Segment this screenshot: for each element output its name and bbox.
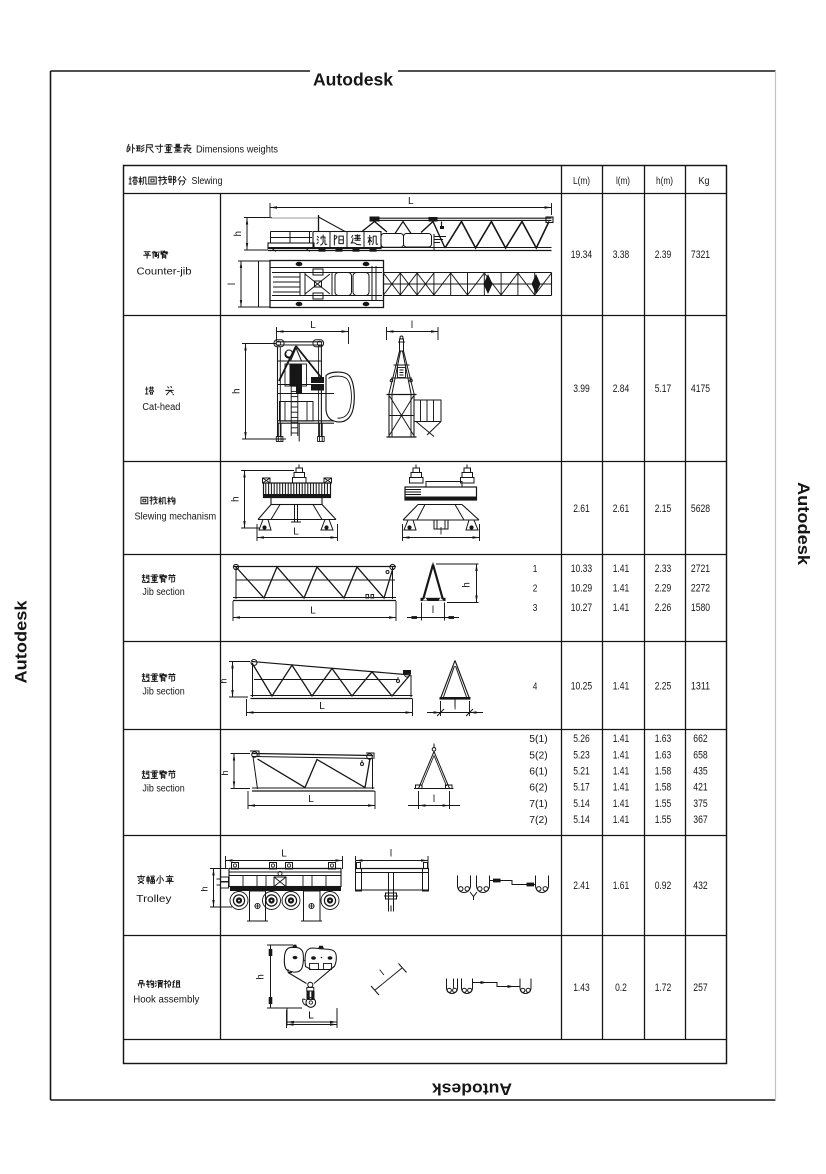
svg-text:Slewing: Slewing [192, 175, 223, 187]
svg-text:2272: 2272 [691, 583, 710, 595]
svg-text:l: l [411, 320, 413, 331]
svg-text:1580: 1580 [691, 602, 710, 614]
svg-text:l: l [454, 702, 456, 713]
svg-text:L: L [293, 527, 299, 538]
svg-text:2.29: 2.29 [655, 583, 672, 595]
svg-text:5628: 5628 [691, 503, 710, 515]
svg-text:4175: 4175 [691, 383, 710, 395]
svg-text:Counter-jib: Counter-jib [137, 267, 192, 278]
svg-text:7321: 7321 [691, 249, 710, 261]
svg-text:2.39: 2.39 [655, 249, 672, 261]
svg-text:0.2: 0.2 [615, 982, 627, 994]
svg-text:5.17: 5.17 [655, 383, 672, 395]
svg-text:Cat-head: Cat-head [142, 402, 180, 413]
svg-text:1.61: 1.61 [613, 880, 630, 892]
svg-text:2.61: 2.61 [573, 503, 590, 515]
svg-text:658: 658 [693, 749, 707, 761]
svg-text:L(m): L(m) [573, 175, 590, 187]
svg-text:1.55: 1.55 [655, 798, 672, 810]
svg-text:421: 421 [693, 782, 707, 794]
svg-text:L: L [308, 1011, 314, 1022]
svg-text:L: L [319, 701, 325, 712]
svg-text:10.25: 10.25 [571, 681, 592, 693]
svg-text:1.55: 1.55 [655, 814, 672, 826]
svg-text:h: h [462, 582, 473, 588]
svg-text:Hook assembly: Hook assembly [133, 995, 199, 1006]
svg-text:1.41: 1.41 [613, 749, 630, 761]
svg-text:l: l [433, 794, 435, 805]
svg-text:Jib section: Jib section [142, 784, 184, 795]
svg-text:1.41: 1.41 [613, 563, 630, 575]
svg-text:10.33: 10.33 [571, 563, 592, 575]
svg-text:375: 375 [693, 798, 707, 810]
svg-text:435: 435 [693, 766, 707, 778]
svg-text:19.34: 19.34 [571, 249, 592, 261]
svg-text:5(1): 5(1) [529, 734, 547, 745]
svg-text:l: l [440, 527, 442, 538]
svg-text:l: l [227, 283, 238, 285]
svg-text:5.14: 5.14 [573, 798, 590, 810]
svg-text:h: h [232, 388, 243, 394]
svg-text:7(1): 7(1) [529, 799, 547, 810]
svg-text:2.61: 2.61 [613, 503, 630, 515]
svg-text:h: h [219, 678, 230, 683]
svg-text:Autodesk: Autodesk [12, 600, 31, 684]
svg-text:1.41: 1.41 [613, 766, 630, 778]
svg-text:257: 257 [693, 982, 707, 994]
svg-text:l: l [432, 605, 434, 616]
svg-text:3.99: 3.99 [573, 383, 590, 395]
svg-text:h: h [231, 496, 242, 502]
svg-text:L: L [310, 320, 316, 331]
svg-text:1.58: 1.58 [655, 766, 672, 778]
svg-text:2.26: 2.26 [655, 602, 672, 614]
svg-text:Autodesk: Autodesk [794, 482, 813, 566]
svg-text:Autodesk: Autodesk [431, 1080, 512, 1099]
svg-text:1.41: 1.41 [613, 602, 630, 614]
svg-text:432: 432 [693, 880, 707, 892]
svg-text:h(m): h(m) [656, 175, 673, 187]
svg-text:Dimensions weights: Dimensions weights [196, 145, 278, 156]
svg-text:l(m): l(m) [616, 175, 630, 187]
svg-text:1.58: 1.58 [655, 782, 672, 794]
svg-text:2.84: 2.84 [613, 383, 630, 395]
svg-text:L: L [408, 196, 414, 207]
svg-text:6(2): 6(2) [529, 783, 547, 794]
svg-text:2.25: 2.25 [655, 681, 672, 693]
svg-text:Kg: Kg [699, 175, 710, 187]
svg-text:l: l [390, 849, 392, 860]
svg-text:5(2): 5(2) [529, 750, 547, 761]
svg-text:2: 2 [533, 584, 538, 595]
svg-text:662: 662 [693, 733, 707, 745]
svg-text:1.41: 1.41 [613, 583, 630, 595]
svg-text:1.41: 1.41 [613, 814, 630, 826]
svg-text:5.17: 5.17 [573, 782, 590, 794]
svg-text:Jib section: Jib section [142, 587, 184, 598]
svg-text:3: 3 [533, 603, 538, 614]
svg-text:2.15: 2.15 [655, 503, 672, 515]
svg-text:Jib section: Jib section [142, 687, 184, 698]
svg-text:Slewing mechanism: Slewing mechanism [135, 512, 217, 523]
svg-text:7(2): 7(2) [529, 815, 547, 826]
svg-text:h: h [256, 974, 267, 980]
svg-text:L: L [310, 606, 316, 617]
svg-text:1: 1 [533, 564, 538, 575]
svg-text:Trolley: Trolley [136, 894, 171, 905]
svg-text:2721: 2721 [691, 563, 710, 575]
svg-text:1.41: 1.41 [613, 733, 630, 745]
svg-text:4: 4 [533, 682, 538, 693]
svg-text:3.38: 3.38 [613, 249, 630, 261]
svg-text:10.29: 10.29 [571, 583, 592, 595]
svg-text:2.41: 2.41 [573, 880, 590, 892]
svg-text:1.72: 1.72 [655, 982, 672, 994]
svg-text:5.23: 5.23 [573, 749, 590, 761]
svg-text:h: h [233, 231, 244, 237]
svg-text:6(1): 6(1) [529, 767, 547, 778]
svg-text:1.63: 1.63 [655, 749, 672, 761]
svg-text:h: h [220, 770, 231, 775]
svg-text:1.63: 1.63 [655, 733, 672, 745]
svg-text:L: L [308, 794, 314, 805]
svg-text:1.43: 1.43 [573, 982, 590, 994]
svg-text:1311: 1311 [691, 681, 710, 693]
svg-text:2.33: 2.33 [655, 563, 672, 575]
svg-text:10.27: 10.27 [571, 602, 592, 614]
svg-text:h: h [200, 886, 211, 891]
svg-text:1.41: 1.41 [613, 798, 630, 810]
svg-text:5.26: 5.26 [573, 733, 590, 745]
svg-text:1.41: 1.41 [613, 681, 630, 693]
svg-text:1.41: 1.41 [613, 782, 630, 794]
svg-text:5.21: 5.21 [573, 766, 590, 778]
svg-text:L: L [281, 849, 287, 860]
svg-text:367: 367 [693, 814, 707, 826]
svg-text:0.92: 0.92 [655, 880, 672, 892]
svg-text:5.14: 5.14 [573, 814, 590, 826]
svg-text:Autodesk: Autodesk [313, 70, 393, 90]
